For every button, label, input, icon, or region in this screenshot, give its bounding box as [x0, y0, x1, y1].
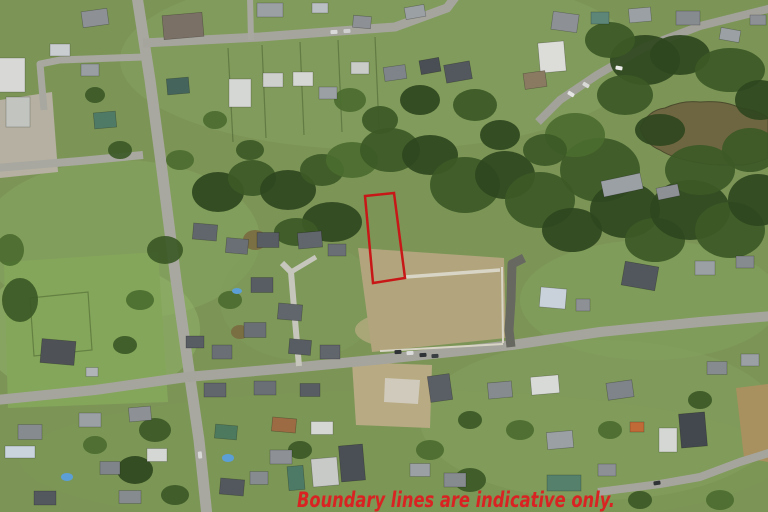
swimming-pool [232, 288, 242, 294]
tree [203, 111, 227, 129]
house-roof [254, 381, 276, 395]
house-roof [229, 79, 251, 107]
house-roof [219, 478, 244, 496]
house-roof [128, 406, 151, 422]
house-roof [312, 3, 328, 13]
house-roof [6, 97, 30, 127]
house-roof [444, 473, 466, 487]
house-roof [147, 449, 167, 462]
house-roof [530, 375, 559, 395]
house-roof [244, 323, 266, 338]
house-roof [86, 368, 98, 377]
house-roof [297, 231, 322, 249]
house-roof [338, 444, 365, 482]
tree [506, 420, 534, 440]
house-roof [551, 11, 579, 32]
tree [635, 114, 685, 146]
house-roof [707, 362, 727, 375]
house-roof [225, 238, 248, 255]
house-roof [79, 413, 101, 427]
tree [126, 290, 154, 310]
tree [480, 120, 520, 150]
car [394, 350, 401, 354]
tree [416, 440, 444, 460]
house-roof [93, 111, 116, 129]
house-roof [606, 380, 634, 400]
house-roof [546, 430, 573, 449]
house-roof [214, 424, 237, 440]
tree [688, 391, 712, 409]
house-roof [311, 422, 333, 435]
house-roof [353, 15, 372, 29]
house-roof [750, 15, 766, 25]
house-roof [320, 345, 340, 359]
subdivision-field [358, 248, 506, 352]
tree [458, 411, 482, 429]
house-roof [50, 44, 70, 56]
house-roof [679, 412, 708, 448]
car [330, 30, 337, 34]
house-roof [251, 278, 273, 293]
curb-line [502, 267, 503, 343]
house-roof [427, 374, 452, 403]
house-roof [576, 299, 590, 311]
car [431, 354, 438, 358]
house-roof [410, 464, 430, 477]
house-roof [18, 425, 42, 440]
tree [166, 150, 194, 170]
house-roof [383, 65, 407, 82]
house-roof [212, 345, 232, 359]
car [406, 351, 413, 355]
house-roof [293, 72, 313, 86]
house-roof [351, 62, 369, 74]
tree [362, 106, 398, 134]
house-roof [523, 71, 547, 90]
swimming-pool [61, 473, 73, 481]
house-roof [328, 244, 346, 256]
tree [628, 491, 652, 509]
tree [706, 490, 734, 510]
tree [236, 140, 264, 160]
tree [113, 336, 137, 354]
car [419, 353, 426, 357]
house-roof [736, 256, 754, 268]
house-roof [538, 41, 567, 73]
house-roof [81, 64, 99, 76]
house-roof [419, 57, 441, 74]
house-roof [0, 58, 25, 92]
tree [108, 141, 132, 159]
car [343, 29, 350, 33]
house-roof [659, 428, 677, 452]
house-roof [250, 472, 268, 485]
short-street [250, 0, 251, 40]
tree [147, 236, 183, 264]
tree [400, 85, 440, 115]
tree [161, 485, 189, 505]
house-roof [257, 3, 283, 17]
house-roof [630, 422, 644, 432]
house-roof [40, 339, 76, 366]
tree [598, 421, 622, 439]
house-roof [628, 7, 651, 23]
tree [83, 436, 107, 454]
house-roof [270, 450, 292, 464]
tree [523, 134, 567, 166]
tree [585, 22, 635, 58]
car [198, 451, 203, 458]
house-roof [539, 287, 567, 309]
satellite-image: Boundary lines are indicative only. [0, 0, 768, 512]
tree [139, 418, 171, 442]
house-roof [591, 12, 609, 24]
house-roof [319, 87, 337, 99]
tree [597, 75, 653, 115]
house-roof [487, 381, 512, 399]
tree [334, 88, 366, 112]
tree [2, 278, 38, 322]
aerial-photo: Boundary lines are indicative only. [0, 0, 768, 512]
house-roof [257, 233, 279, 248]
boundary-disclaimer-text: Boundary lines are indicative only. [297, 488, 615, 512]
house-roof [204, 383, 226, 397]
house-roof [271, 417, 296, 433]
slab [384, 378, 420, 404]
house-roof [186, 336, 204, 348]
house-roof [81, 8, 109, 27]
house-roof [277, 303, 302, 321]
house-roof [741, 354, 759, 366]
house-roof [119, 491, 141, 504]
house-roof [100, 462, 120, 475]
house-roof [288, 339, 311, 356]
house-roof [34, 491, 56, 505]
tree [453, 89, 497, 121]
swimming-pool [222, 454, 234, 462]
house-roof [695, 261, 715, 275]
house-roof [5, 446, 35, 458]
house-roof [192, 223, 217, 241]
house-roof [166, 77, 189, 95]
house-roof [300, 384, 320, 397]
house-roof [263, 73, 283, 87]
house-roof [676, 11, 700, 25]
tree [85, 87, 105, 103]
house-roof [162, 12, 204, 39]
house-roof [287, 465, 305, 490]
house-roof [598, 464, 616, 476]
house-roof [311, 457, 339, 487]
